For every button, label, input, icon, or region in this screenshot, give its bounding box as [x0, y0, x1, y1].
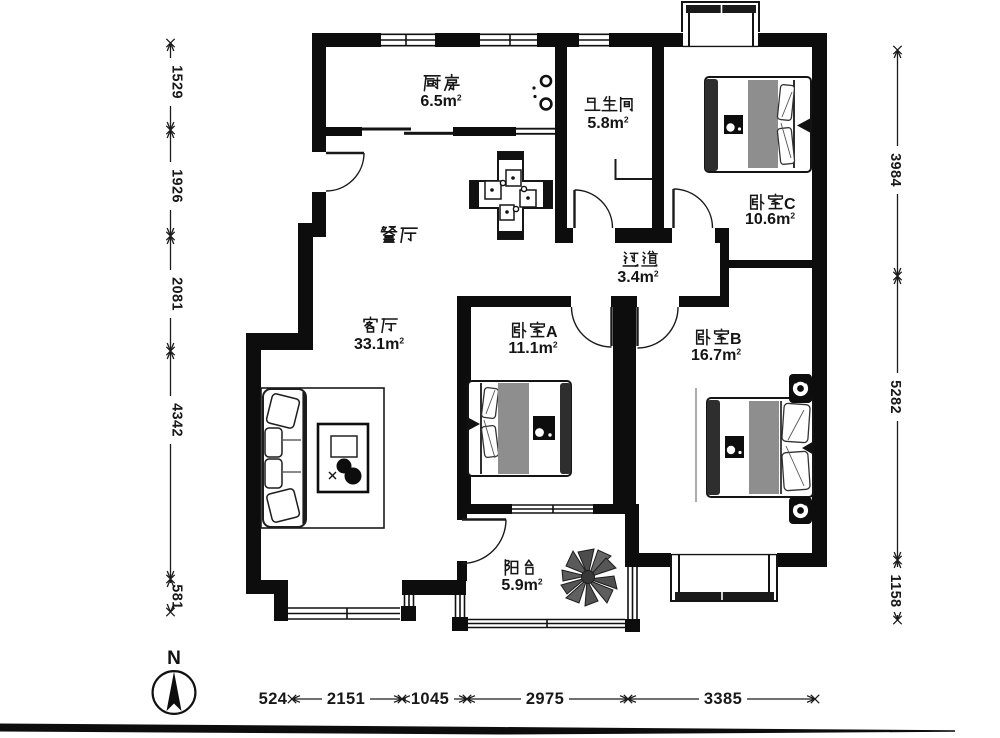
svg-text:2975: 2975 [526, 690, 564, 708]
svg-text:5282: 5282 [887, 380, 903, 414]
svg-text:33.1m2: 33.1m2 [354, 336, 404, 354]
svg-text:A: A [546, 324, 558, 341]
svg-text:5.8m2: 5.8m2 [587, 115, 628, 133]
svg-text:16.7m2: 16.7m2 [691, 347, 741, 365]
svg-text:B: B [730, 331, 742, 348]
svg-text:3385: 3385 [704, 690, 742, 708]
svg-text:11.1m2: 11.1m2 [508, 340, 557, 358]
svg-text:1158: 1158 [887, 574, 903, 607]
svg-text:10.6m2: 10.6m2 [745, 211, 795, 229]
svg-text:2151: 2151 [327, 690, 365, 708]
svg-text:N: N [167, 648, 181, 669]
svg-text:5.9m2: 5.9m2 [501, 577, 542, 595]
svg-text:1926: 1926 [169, 169, 185, 203]
svg-text:581: 581 [169, 584, 185, 609]
svg-text:1529: 1529 [169, 65, 185, 99]
svg-text:3984: 3984 [887, 153, 903, 187]
svg-text:2081: 2081 [169, 277, 185, 311]
svg-text:524: 524 [259, 690, 288, 708]
svg-text:4342: 4342 [169, 403, 185, 437]
svg-text:3.4m2: 3.4m2 [617, 269, 658, 287]
svg-text:1045: 1045 [411, 690, 449, 708]
svg-text:6.5m2: 6.5m2 [420, 93, 461, 111]
